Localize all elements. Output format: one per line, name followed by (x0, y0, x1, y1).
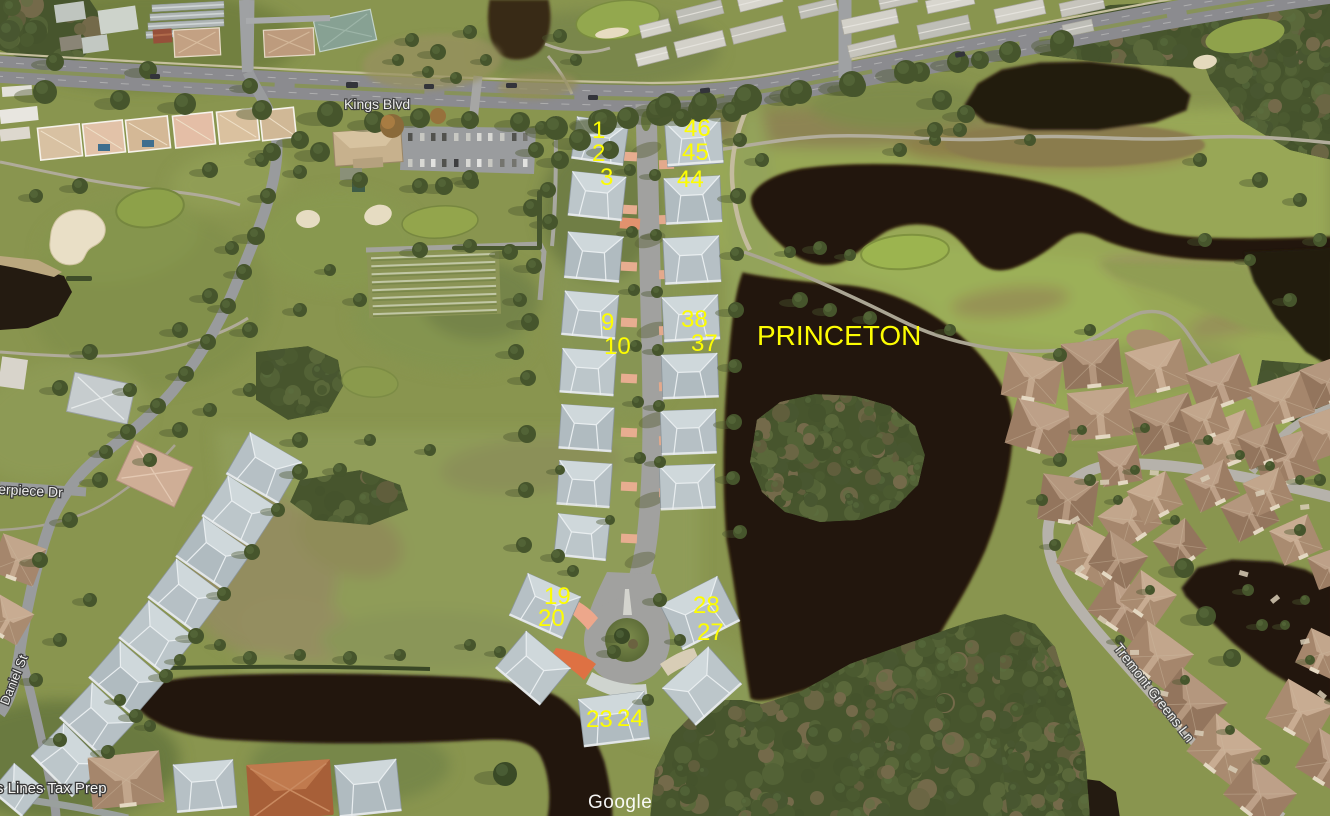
svg-text:45: 45 (682, 139, 709, 166)
svg-text:27: 27 (697, 619, 724, 646)
svg-text:20: 20 (538, 605, 565, 632)
svg-text:37: 37 (691, 330, 718, 357)
svg-text:PRINCETON: PRINCETON (757, 320, 921, 351)
svg-text:2: 2 (592, 140, 605, 167)
svg-text:44: 44 (677, 166, 704, 193)
svg-text:46: 46 (684, 115, 711, 142)
svg-text:23: 23 (586, 706, 613, 733)
svg-text:erpiece Dr: erpiece Dr (0, 481, 64, 500)
svg-text:38: 38 (681, 306, 708, 333)
svg-text:3: 3 (600, 164, 613, 191)
svg-text:10: 10 (604, 333, 631, 360)
svg-text:Google: Google (588, 792, 652, 813)
svg-text:24: 24 (617, 705, 644, 732)
svg-text:Kings Blvd: Kings Blvd (344, 96, 410, 112)
svg-text:9: 9 (601, 309, 614, 336)
svg-text:s Lines Tax Prep: s Lines Tax Prep (0, 780, 107, 797)
svg-text:28: 28 (693, 592, 720, 619)
